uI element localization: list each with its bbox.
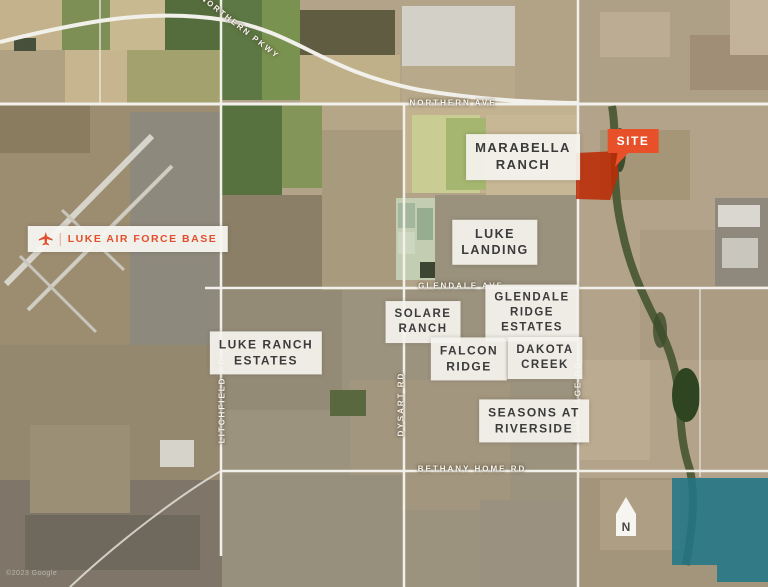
map-overlay-graphics: N <box>0 0 768 587</box>
luke-afb-text: LUKE AIR FORCE BASE <box>68 233 217 245</box>
label-line: LUKE RANCH <box>219 337 313 353</box>
place-label-glendale-ridge-estates: GLENDALE RIDGE ESTATES <box>485 285 578 342</box>
place-label-dakota-creek: DAKOTA CREEK <box>507 337 582 379</box>
label-divider <box>60 233 61 246</box>
label-line: ESTATES <box>494 320 569 335</box>
label-line: RIDGE <box>440 359 498 375</box>
north-letter: N <box>622 520 631 534</box>
place-label-luke-afb: LUKE AIR FORCE BASE <box>28 226 228 252</box>
label-line: MARABELLA <box>475 140 571 157</box>
label-line: FALCON <box>440 343 498 359</box>
place-label-luke-ranch-estates: LUKE RANCH ESTATES <box>210 331 322 374</box>
site-parcel <box>576 151 618 200</box>
label-line: SOLARE <box>395 307 452 322</box>
label-line: DAKOTA <box>516 343 573 358</box>
teal-parcel <box>672 478 768 582</box>
road-label-dysart-rd: DYSART RD <box>397 372 406 437</box>
road-label-bethany-home-rd: BETHANY HOME RD <box>418 465 527 474</box>
place-label-luke-landing: LUKE LANDING <box>452 220 537 265</box>
label-line: GLENDALE <box>494 291 569 306</box>
north-arrow-icon: N <box>616 497 636 536</box>
label-line: RANCH <box>475 157 571 174</box>
label-line: LUKE <box>461 226 528 242</box>
label-line: LANDING <box>461 242 528 258</box>
aerial-site-map: N NORTHERN PKWY NORTHERN AVE GLENDALE AV… <box>0 0 768 587</box>
map-attribution: ©2023 Google <box>6 570 57 577</box>
place-label-seasons-at-riverside: SEASONS AT RIVERSIDE <box>479 399 589 442</box>
label-line: ESTATES <box>219 353 313 369</box>
label-line: RIDGE <box>494 306 569 321</box>
place-label-falcon-ridge: FALCON RIDGE <box>431 337 507 380</box>
label-line: RANCH <box>395 322 452 337</box>
jet-icon <box>39 232 53 246</box>
label-line: CREEK <box>516 358 573 373</box>
label-line: RIVERSIDE <box>488 421 580 437</box>
road-grid <box>0 0 768 587</box>
site-callout: SITE <box>608 129 659 153</box>
label-line: SEASONS AT <box>488 405 580 421</box>
road-label-northern-ave: NORTHERN AVE <box>409 99 496 108</box>
place-label-marabella-ranch: MARABELLA RANCH <box>466 134 580 180</box>
